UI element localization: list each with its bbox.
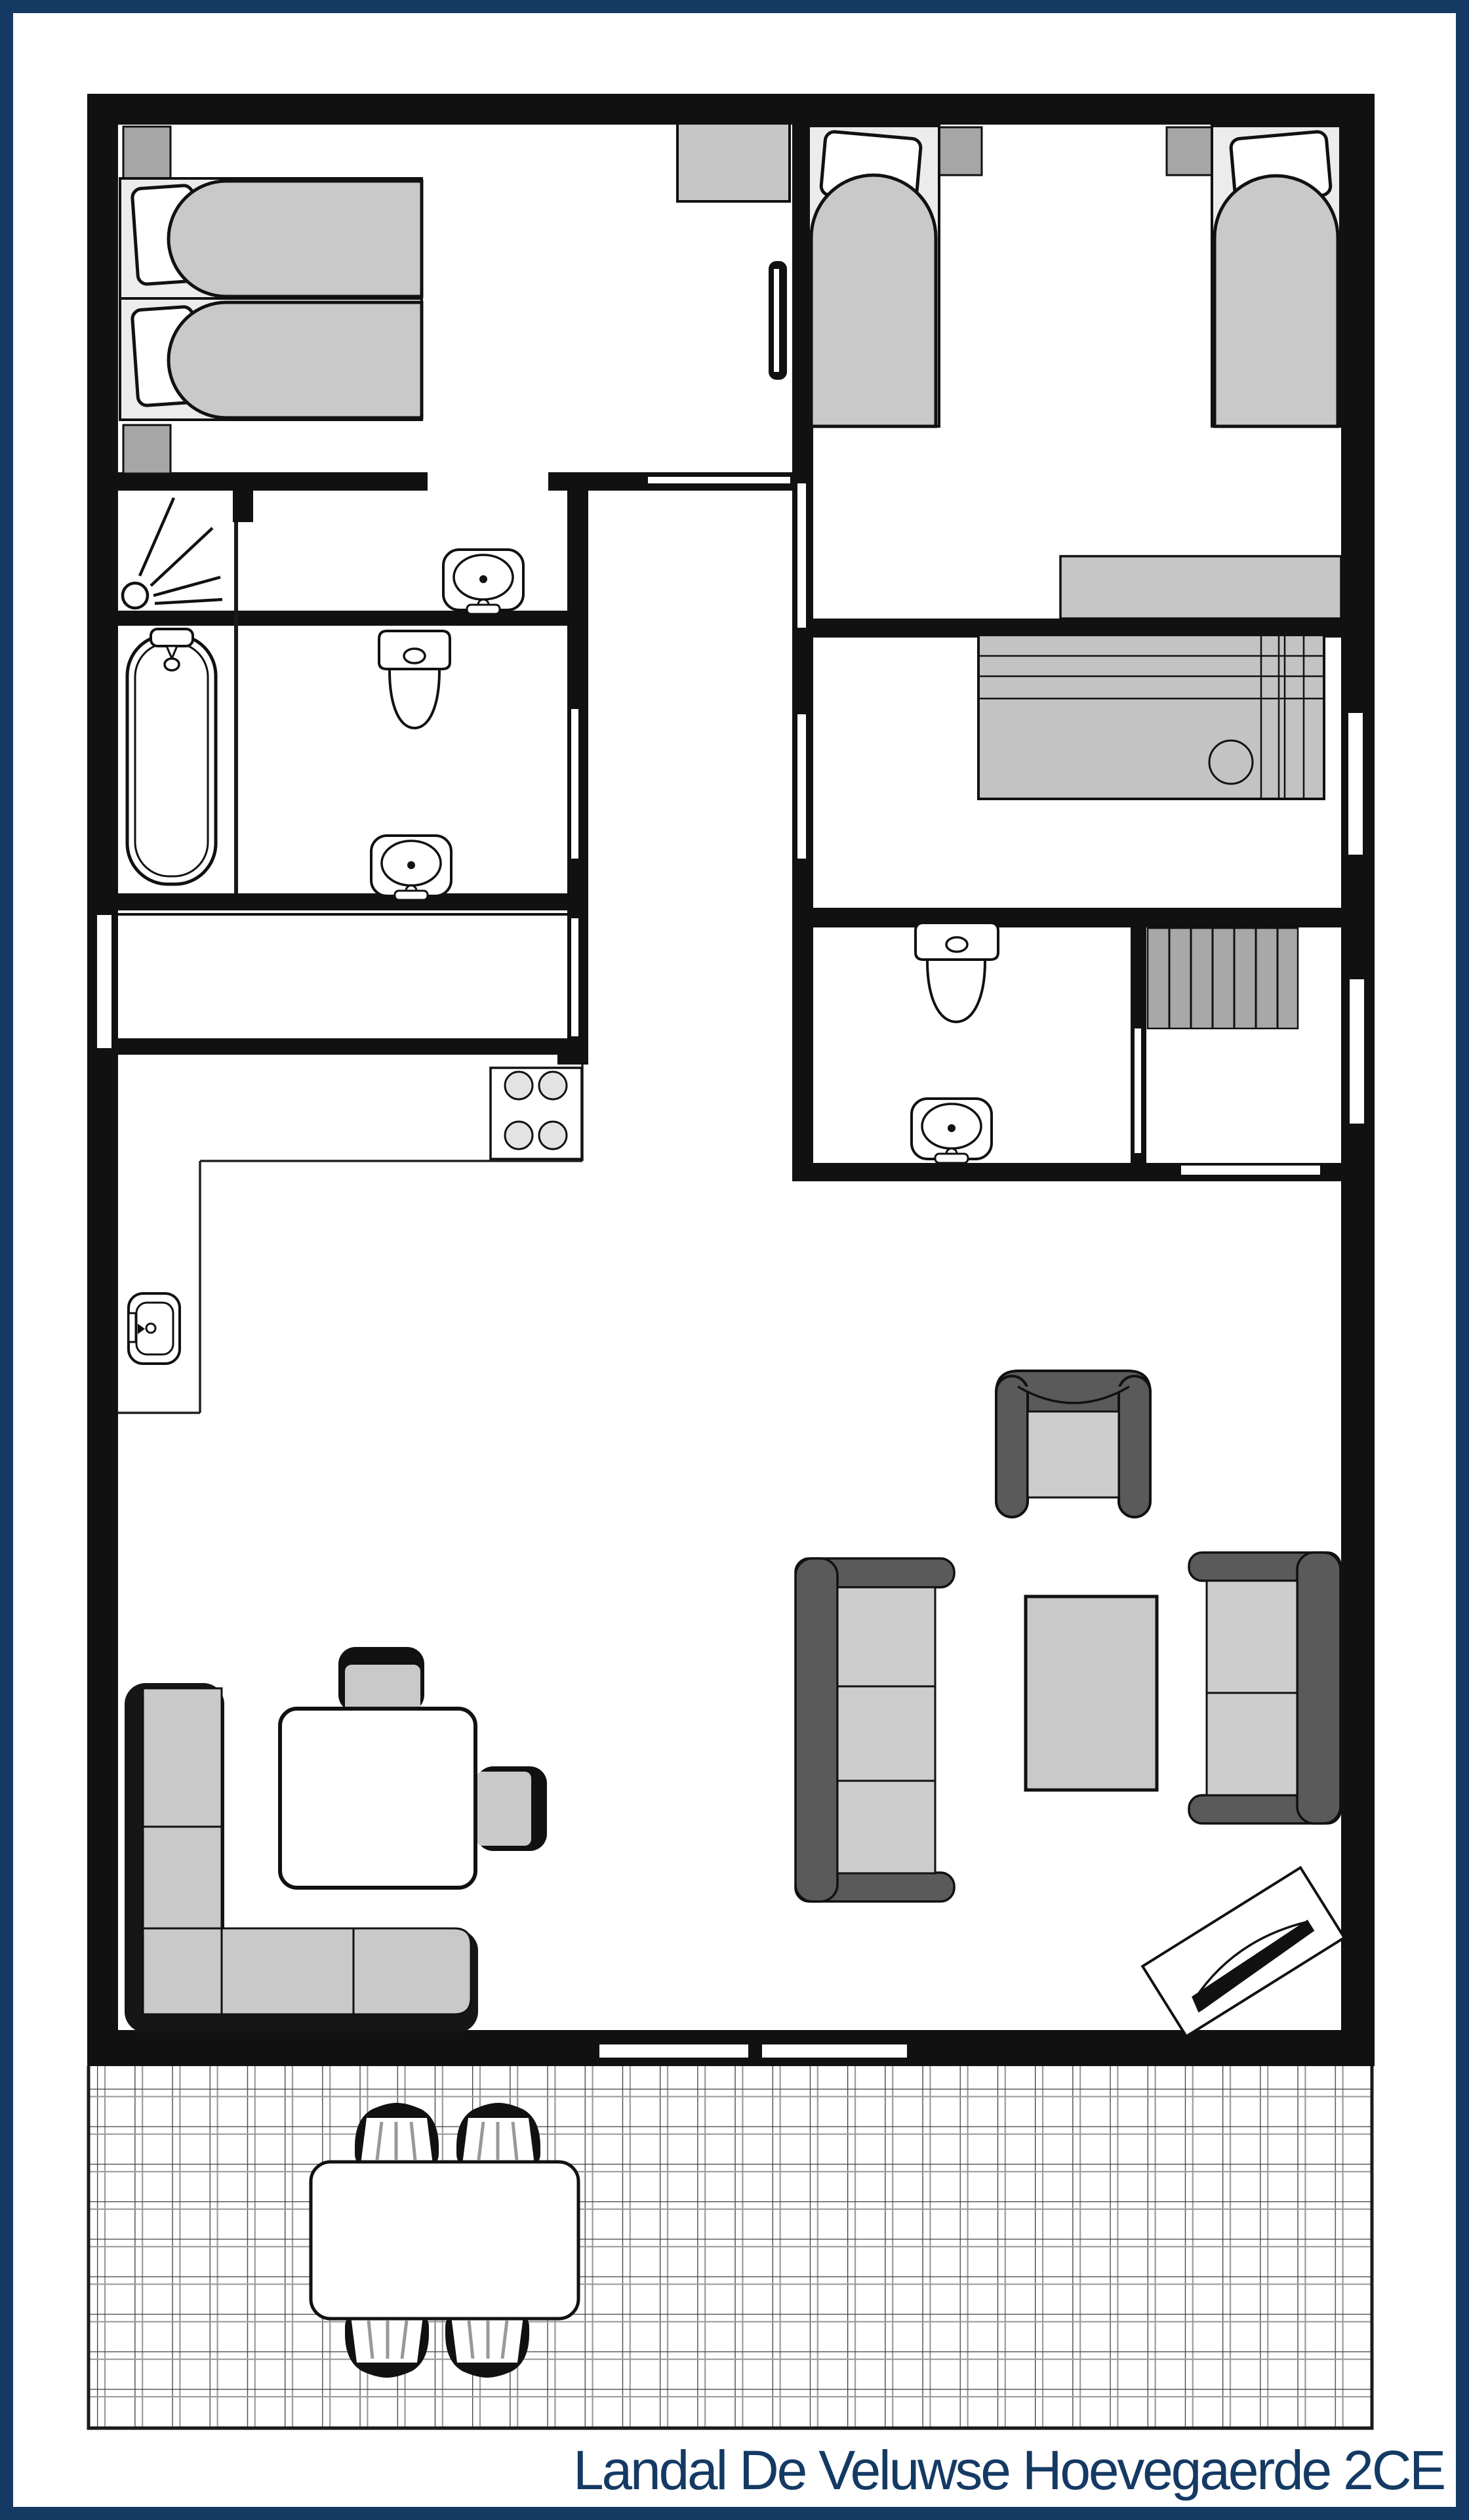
- svg-text:Landal De Veluwse Hoevegaerde: Landal De Veluwse Hoevegaerde 2CE: [573, 2439, 1444, 2501]
